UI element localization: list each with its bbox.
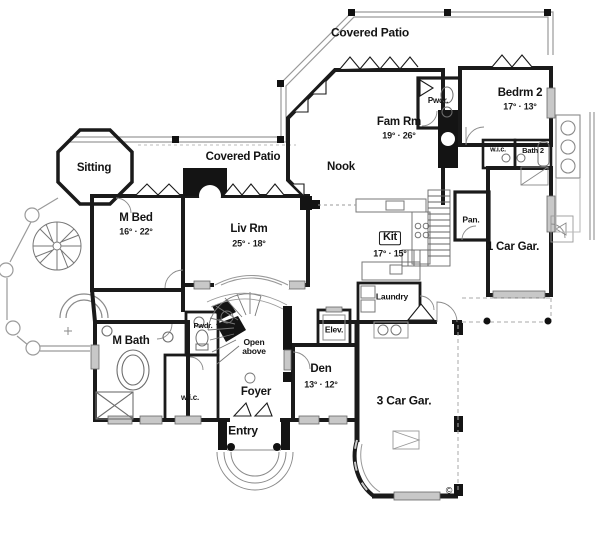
garden-path bbox=[0, 198, 90, 355]
room-label-entry: Entry bbox=[228, 425, 258, 438]
room-label-m-bath: M Bath bbox=[112, 335, 149, 347]
room-label-liv-rm: Liv Rm bbox=[230, 223, 267, 235]
room-label-pwdr-lower: Pwdr. bbox=[193, 322, 212, 330]
room-label-sitting: Sitting bbox=[77, 162, 111, 174]
floor-plan-page: Covered Patio Pwdr. Bedrm 2 17° · 13° Fa… bbox=[0, 0, 600, 545]
room-label-den: Den bbox=[310, 363, 331, 375]
room-label-fam-rm: Fam Rm bbox=[377, 116, 421, 128]
sink-icon bbox=[517, 154, 525, 162]
room-dims-liv-rm: 25° · 18° bbox=[232, 239, 265, 248]
covered-walk bbox=[458, 298, 552, 492]
room-dims-kit: 17° · 15° bbox=[373, 249, 406, 258]
room-label-laundry: Laundry bbox=[376, 293, 408, 302]
room-label-elev: Elev. bbox=[325, 326, 343, 335]
room-label-foyer: Foyer bbox=[241, 386, 271, 398]
entry-steps bbox=[217, 443, 293, 490]
spiral-staircase-icon bbox=[33, 222, 81, 270]
rear-balcony-arch bbox=[60, 294, 108, 335]
kitchen-sink-icon bbox=[386, 201, 404, 210]
room-label-one-car-gar: 1 Car Gar. bbox=[487, 241, 539, 253]
range-icon bbox=[415, 223, 429, 238]
room-label-three-car-gar: 3 Car Gar. bbox=[377, 395, 432, 408]
window-bars bbox=[91, 88, 555, 500]
outdoor-kitchen-strip bbox=[556, 115, 580, 232]
room-label-nook: Nook bbox=[327, 161, 355, 173]
room-label-covered-patio-top: Covered Patio bbox=[331, 27, 409, 40]
sink-icon bbox=[102, 326, 112, 336]
room-label-covered-patio-mid: Covered Patio bbox=[206, 151, 281, 163]
patio-railing bbox=[70, 12, 594, 240]
room-dims-m-bed: 16° · 22° bbox=[119, 227, 152, 236]
floor-plan-drawing bbox=[0, 0, 600, 545]
room-label-m-bed: M Bed bbox=[119, 212, 153, 224]
room-label-pan: Pan. bbox=[462, 216, 479, 225]
room-label-bedrm2: Bedrm 2 bbox=[498, 87, 543, 99]
room-label-bath2: Bath 2 bbox=[522, 147, 544, 155]
window-triangle-symbols bbox=[136, 55, 532, 416]
room-dims-fam-rm: 19° · 26° bbox=[382, 131, 415, 140]
room-label-pwdr-upper: Pwdr. bbox=[428, 97, 448, 105]
room-label-open-above: Open above bbox=[242, 338, 266, 356]
room-label-wic-lower: w.i.c. bbox=[181, 394, 199, 402]
copyright-symbol: © bbox=[446, 486, 452, 495]
toilet-icon bbox=[502, 154, 510, 162]
room-dims-den: 13° · 12° bbox=[304, 380, 337, 389]
room-label-wic-upper: w.i.c. bbox=[490, 146, 506, 153]
room-label-kit: Kit bbox=[379, 231, 401, 245]
bow-window bbox=[214, 276, 289, 290]
room-dims-bedrm2: 17° · 13° bbox=[503, 102, 536, 111]
garage-symbol bbox=[393, 431, 419, 449]
